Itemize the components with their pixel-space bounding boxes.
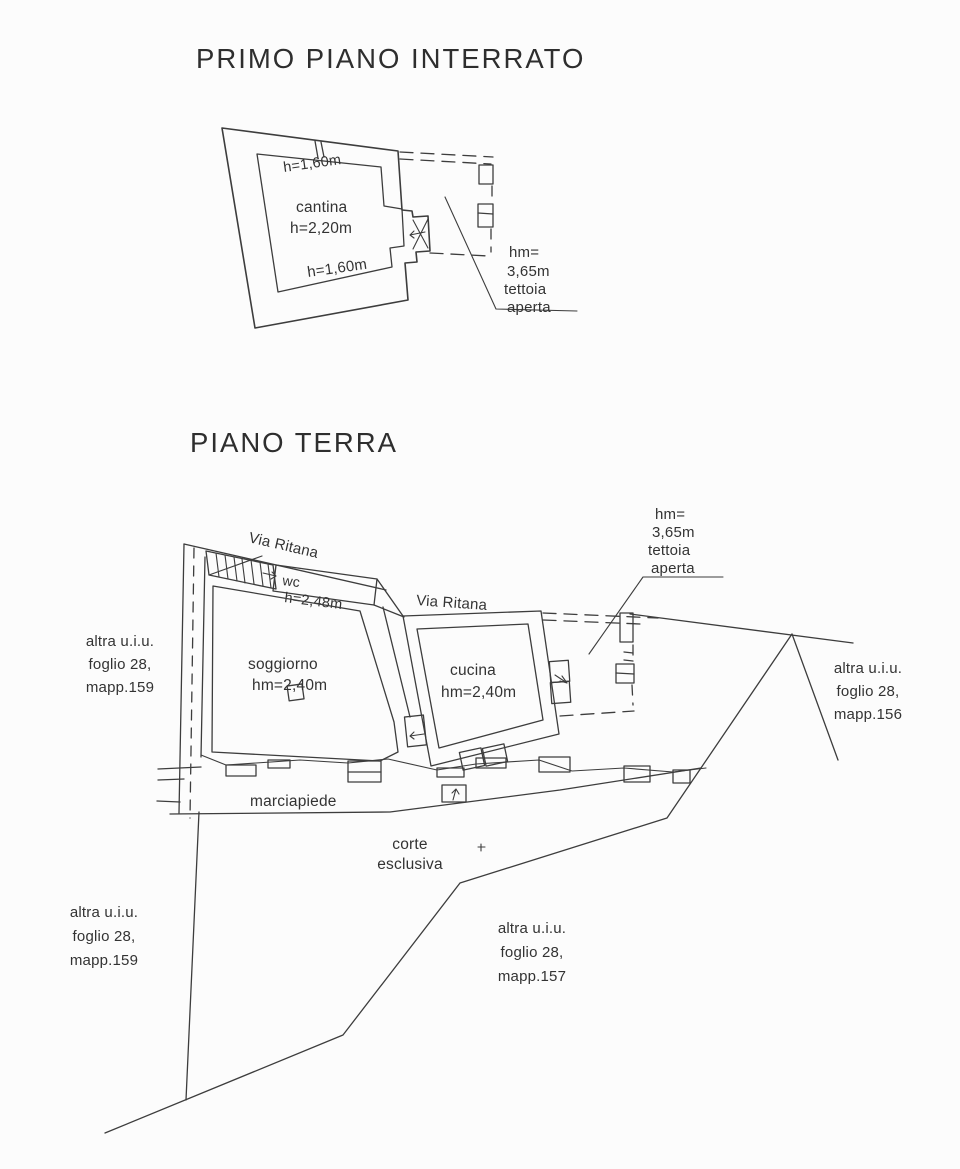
basement-plan: PRIMO PIANO INTERRATO xyxy=(196,43,585,328)
note-line: tettoia xyxy=(504,281,547,298)
label-height-bottom: h=1,60m xyxy=(306,256,368,281)
step-arrow-icon xyxy=(452,789,459,800)
parcel-line: foglio 28, xyxy=(837,683,900,700)
note-line: aperta xyxy=(507,299,551,316)
parcel-line: altra u.i.u. xyxy=(498,920,566,937)
room-height-cantina: h=2,20m xyxy=(290,220,352,237)
note-line: aperta xyxy=(651,560,695,577)
room-height-cucina: hm=2,40m xyxy=(441,684,516,701)
entrance-step xyxy=(442,785,466,802)
parcel-label-south: altra u.i.u. foglio 28, mapp.157 xyxy=(498,920,566,985)
cucina-east-door xyxy=(549,660,569,682)
scanned-floor-plan-page: PRIMO PIANO INTERRATO xyxy=(0,0,960,1169)
parcel-line: foglio 28, xyxy=(501,944,564,961)
survey-cross-mark xyxy=(478,844,485,851)
parcel-line: foglio 28, xyxy=(89,656,152,673)
note-line: hm= xyxy=(655,506,685,523)
basement-title: PRIMO PIANO INTERRATO xyxy=(196,43,585,74)
courtyard-label: corte xyxy=(392,836,427,853)
note-line: 3,65m xyxy=(507,263,550,280)
cucina-south-opening xyxy=(459,748,484,770)
note-line: tettoia xyxy=(648,542,691,559)
parcel-label-west-lower: altra u.i.u. foglio 28, mapp.159 xyxy=(70,904,138,969)
room-label-soggiorno: soggiorno xyxy=(248,656,318,673)
parcel-line: mapp.157 xyxy=(498,968,566,985)
courtyard-label: esclusiva xyxy=(377,856,443,873)
parcel-label-east: altra u.i.u. foglio 28, mapp.156 xyxy=(834,660,902,723)
parcel-line: foglio 28, xyxy=(73,928,136,945)
note-line: 3,65m xyxy=(652,524,695,541)
ground-tettoia-note: hm= 3,65m tettoia aperta xyxy=(648,506,695,577)
corridor-door xyxy=(404,715,426,747)
tettoia-pillar xyxy=(479,165,493,184)
parcel-line: altra u.i.u. xyxy=(70,904,138,921)
sidewalk-label: marciapiede xyxy=(250,793,337,810)
room-label-cantina: cantina xyxy=(296,199,348,216)
room-height-wc: h=2,48m xyxy=(284,590,344,613)
note-line: hm= xyxy=(509,244,539,261)
road-centerline xyxy=(190,548,194,818)
parcel-line: altra u.i.u. xyxy=(86,633,154,650)
basement-door xyxy=(410,219,428,249)
parcel-line: mapp.156 xyxy=(834,706,902,723)
tettoia-dashed-outline xyxy=(400,152,493,256)
room-label-cucina: cucina xyxy=(450,662,496,679)
soggiorno-room xyxy=(212,586,398,761)
street-label-east: Via Ritana xyxy=(416,592,488,614)
parcel-line: mapp.159 xyxy=(86,679,154,696)
parcel-label-west-upper: altra u.i.u. foglio 28, mapp.159 xyxy=(86,633,154,696)
floor-plan-drawing: PRIMO PIANO INTERRATO xyxy=(0,0,960,1169)
door-arrow-icon xyxy=(410,231,425,238)
ground-title: PIANO TERRA xyxy=(190,427,398,458)
tettoia-pillar xyxy=(478,204,493,227)
ground-floor-plan: PIANO TERRA Via Ritana Via Ritana xyxy=(70,427,902,1133)
label-height-top: h=1,60m xyxy=(282,152,342,176)
parcel-line: altra u.i.u. xyxy=(834,660,902,677)
room-label-wc: wc xyxy=(281,572,301,590)
basement-tettoia-note: hm= 3,65m tettoia aperta xyxy=(504,244,551,316)
parcel-line: mapp.159 xyxy=(70,952,138,969)
room-height-soggiorno: hm=2,40m xyxy=(252,677,327,694)
corridor-door-arrow-icon xyxy=(410,732,424,739)
ground-tettoia-dashed-outline xyxy=(543,613,658,716)
